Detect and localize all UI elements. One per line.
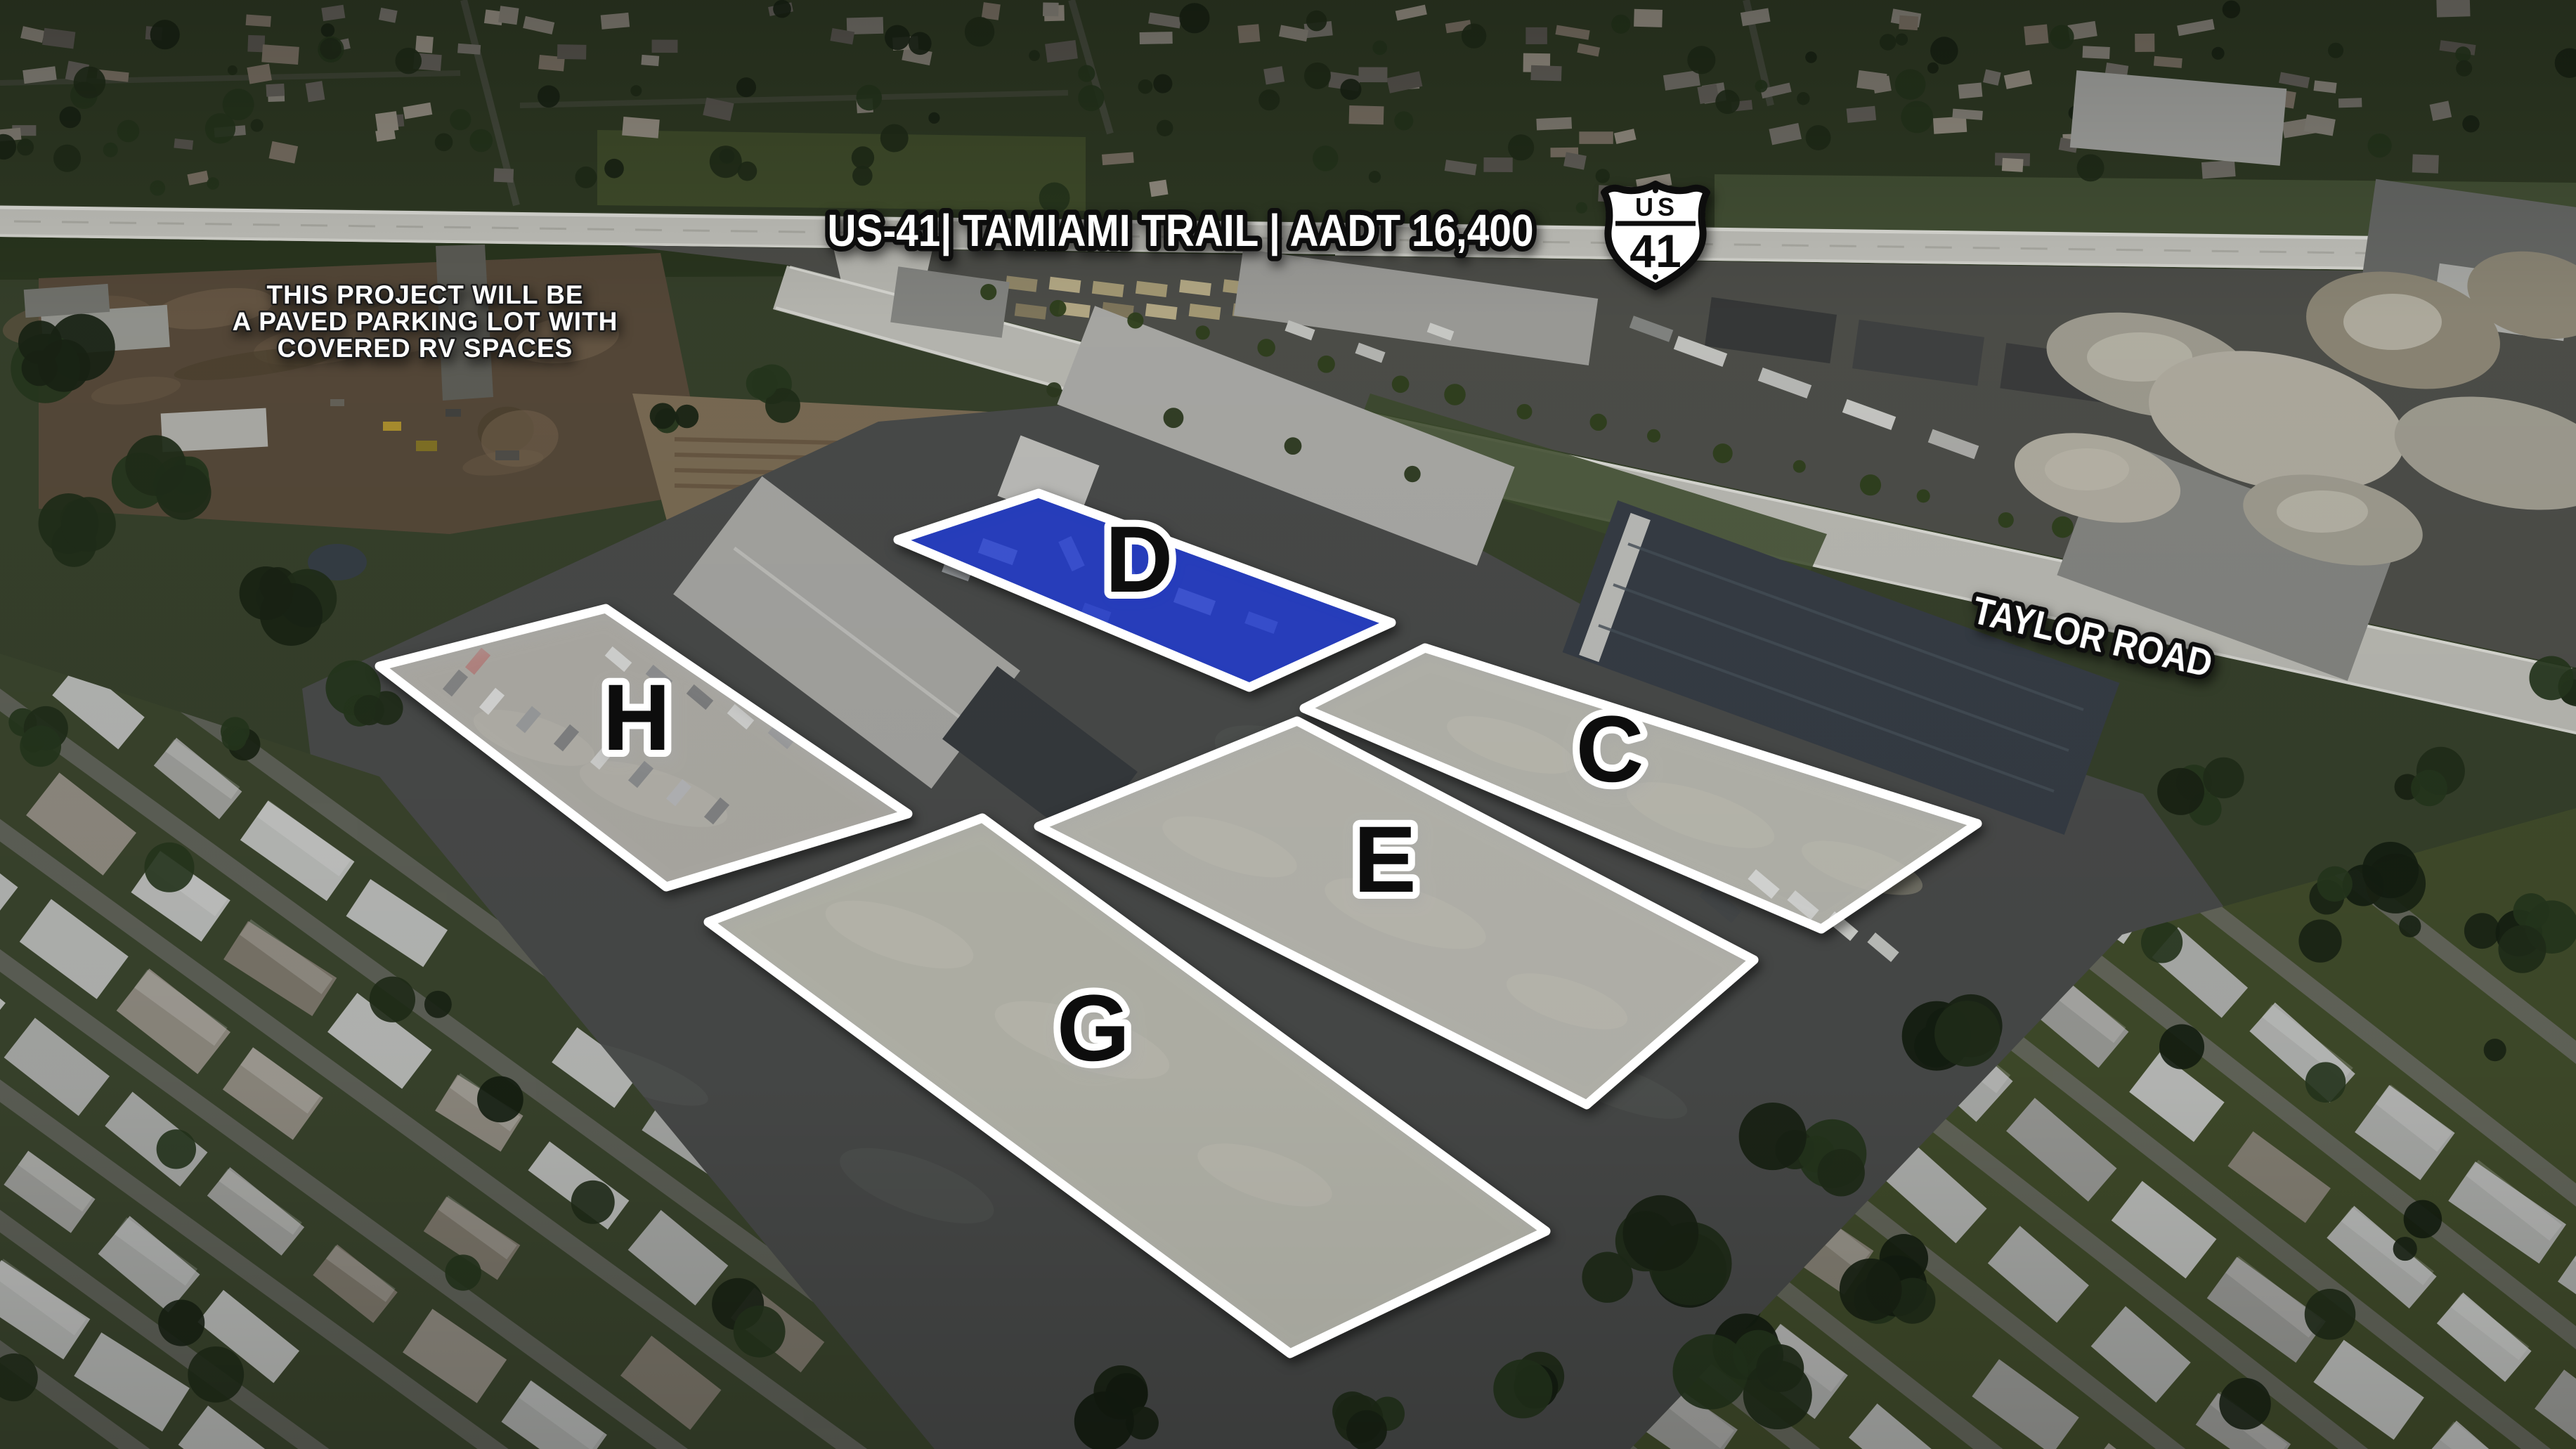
parcel-d-label: D	[1105, 507, 1172, 612]
shield-us-text: US	[1635, 193, 1679, 221]
project-note-line-3: COVERED RV SPACES	[278, 334, 573, 363]
project-note-line-1: THIS PROJECT WILL BE	[266, 280, 583, 309]
shield-number-text: 41	[1629, 225, 1681, 277]
parcel-c-label: C	[1576, 697, 1643, 802]
project-note: THIS PROJECT WILL BE A PAVED PARKING LOT…	[233, 280, 618, 363]
parcel-e-label: E	[1353, 807, 1414, 912]
aerial-photo: D H C E G US-41| TAMIAMI TRAIL | AADT 16…	[0, 0, 2576, 1449]
parcel-g-label: G	[1057, 976, 1128, 1081]
project-note-line-2: A PAVED PARKING LOT WITH	[233, 307, 618, 336]
aerial-site-plan: D H C E G US-41| TAMIAMI TRAIL | AADT 16…	[0, 0, 2576, 1449]
parcel-h-label: H	[603, 665, 670, 770]
us41-road-label: US-41| TAMIAMI TRAIL | AADT 16,400	[828, 205, 1534, 256]
